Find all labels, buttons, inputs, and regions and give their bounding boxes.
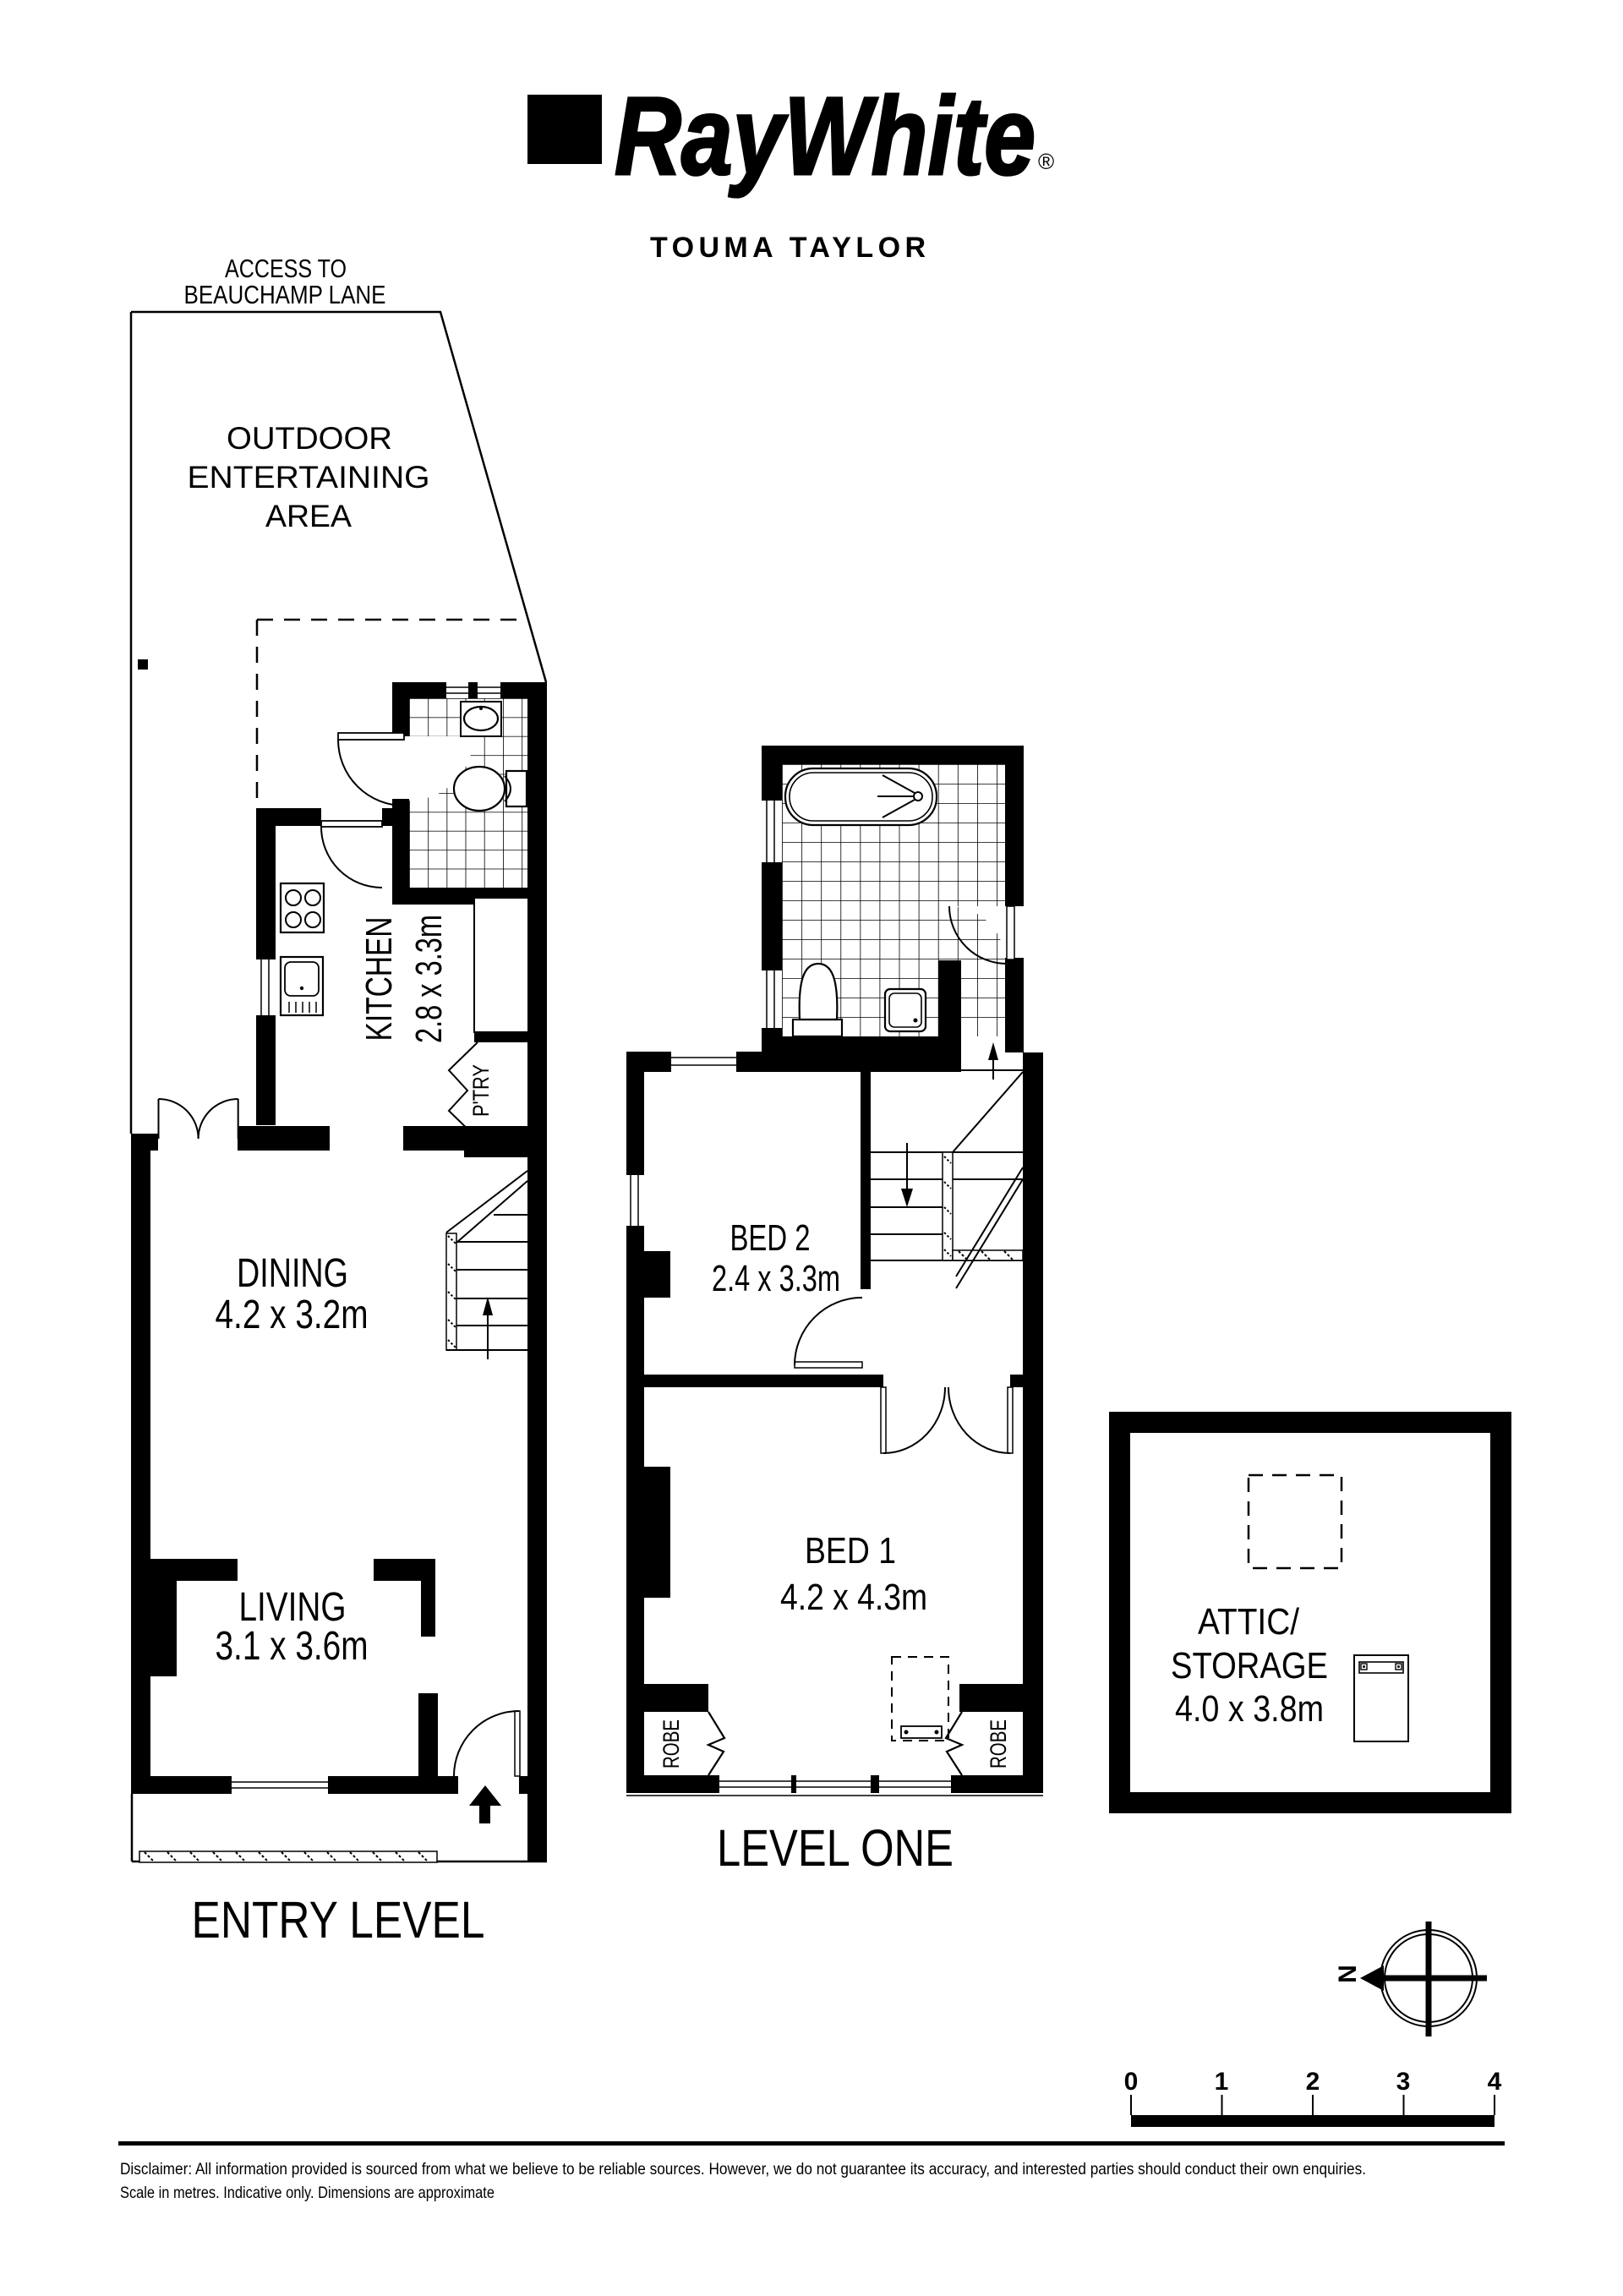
svg-text:4.2 x 4.3m: 4.2 x 4.3m (780, 1577, 927, 1618)
svg-text:ROBE: ROBE (986, 1719, 1011, 1768)
svg-text:KITCHEN: KITCHEN (358, 917, 400, 1041)
svg-text:N: N (1334, 1965, 1362, 1983)
svg-text:RayWhite: RayWhite (615, 74, 1036, 198)
svg-text:2: 2 (1306, 2068, 1320, 2096)
svg-text:ENTRY LEVEL: ENTRY LEVEL (192, 1891, 485, 1949)
svg-text:2.8 x 3.3m: 2.8 x 3.3m (408, 915, 450, 1043)
svg-text:OUTDOOR: OUTDOOR (227, 421, 392, 456)
svg-text:LEVEL ONE: LEVEL ONE (717, 1819, 954, 1877)
svg-text:3.1 x 3.6m: 3.1 x 3.6m (216, 1624, 369, 1669)
svg-text:3: 3 (1396, 2068, 1411, 2096)
svg-text:ROBE: ROBE (658, 1719, 684, 1768)
svg-text:Scale in metres. Indicative on: Scale in metres. Indicative only. Dimens… (120, 2184, 495, 2202)
svg-text:®: ® (1038, 149, 1054, 174)
svg-text:BED 1: BED 1 (805, 1530, 896, 1572)
svg-text:ATTIC/: ATTIC/ (1198, 1601, 1300, 1643)
svg-text:4: 4 (1488, 2068, 1502, 2096)
svg-text:4.0 x 3.8m: 4.0 x 3.8m (1175, 1688, 1324, 1730)
svg-text:P'TRY: P'TRY (468, 1064, 494, 1117)
svg-text:0: 0 (1124, 2068, 1139, 2096)
svg-text:AREA: AREA (265, 499, 352, 533)
svg-text:ACCESS TO: ACCESS TO (225, 254, 347, 283)
svg-text:2.4 x 3.3m: 2.4 x 3.3m (712, 1258, 840, 1299)
svg-text:ENTERTAINING: ENTERTAINING (188, 460, 430, 495)
svg-text:BEAUCHAMP LANE: BEAUCHAMP LANE (184, 280, 386, 309)
svg-text:4.2 x 3.2m: 4.2 x 3.2m (216, 1293, 369, 1337)
svg-text:BED 2: BED 2 (730, 1217, 811, 1259)
svg-text:1: 1 (1215, 2068, 1229, 2096)
svg-text:DINING: DINING (237, 1251, 348, 1296)
svg-text:Disclaimer: All information pr: Disclaimer: All information provided is … (120, 2160, 1366, 2178)
svg-text:STORAGE: STORAGE (1171, 1645, 1328, 1686)
